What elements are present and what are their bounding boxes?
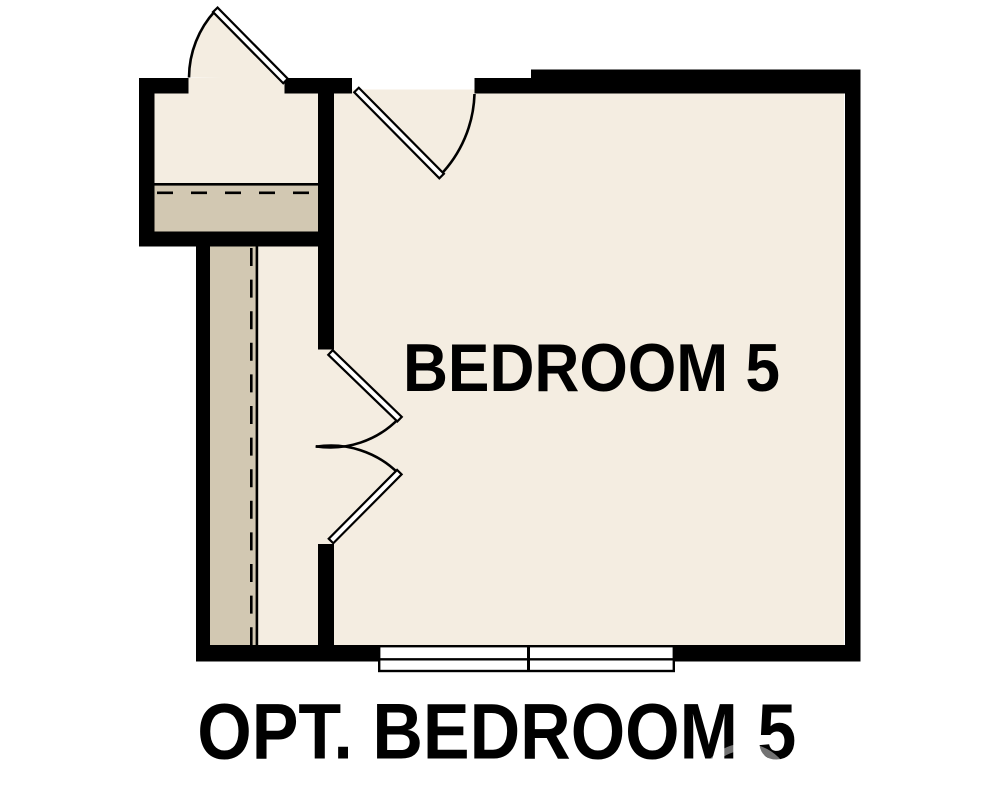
svg-text:BEDROOM 5: BEDROOM 5 xyxy=(403,329,780,405)
svg-text:OPT. BEDROOM 5: OPT. BEDROOM 5 xyxy=(197,688,796,776)
